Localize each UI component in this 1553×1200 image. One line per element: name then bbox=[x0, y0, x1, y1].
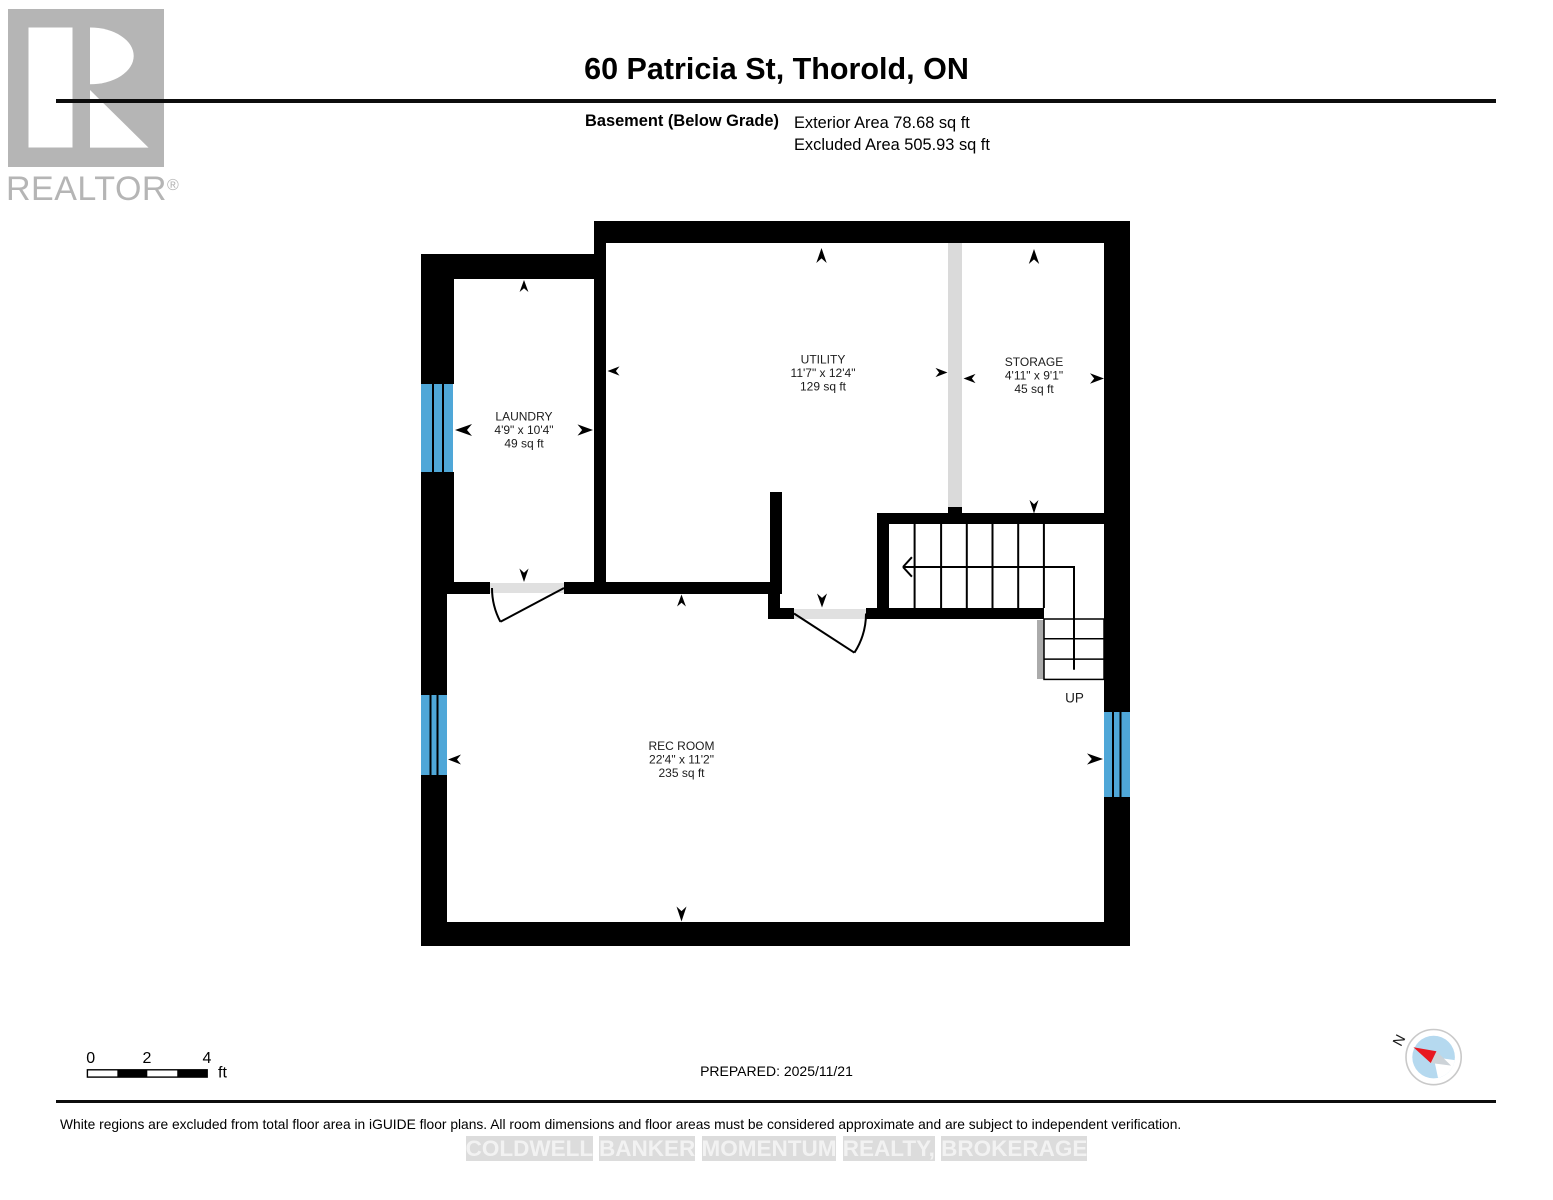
svg-text:235 sq ft: 235 sq ft bbox=[658, 766, 705, 780]
svg-text:4'11" x 9'1": 4'11" x 9'1" bbox=[1005, 369, 1063, 383]
svg-text:LAUNDRY: LAUNDRY bbox=[495, 410, 552, 424]
svg-text:UTILITY: UTILITY bbox=[801, 353, 846, 367]
svg-text:N: N bbox=[1390, 1032, 1409, 1049]
svg-text:STORAGE: STORAGE bbox=[1005, 355, 1063, 369]
svg-text:11'7" x 12'4": 11'7" x 12'4" bbox=[791, 366, 856, 380]
svg-text:4'9" x 10'4": 4'9" x 10'4" bbox=[494, 423, 553, 437]
svg-text:22'4" x 11'2": 22'4" x 11'2" bbox=[649, 753, 714, 767]
svg-text:129 sq ft: 129 sq ft bbox=[800, 380, 847, 394]
svg-text:UP: UP bbox=[1065, 691, 1084, 706]
svg-text:49 sq ft: 49 sq ft bbox=[504, 437, 544, 451]
svg-text:45 sq ft: 45 sq ft bbox=[1014, 382, 1054, 396]
svg-text:REC ROOM: REC ROOM bbox=[649, 739, 715, 753]
